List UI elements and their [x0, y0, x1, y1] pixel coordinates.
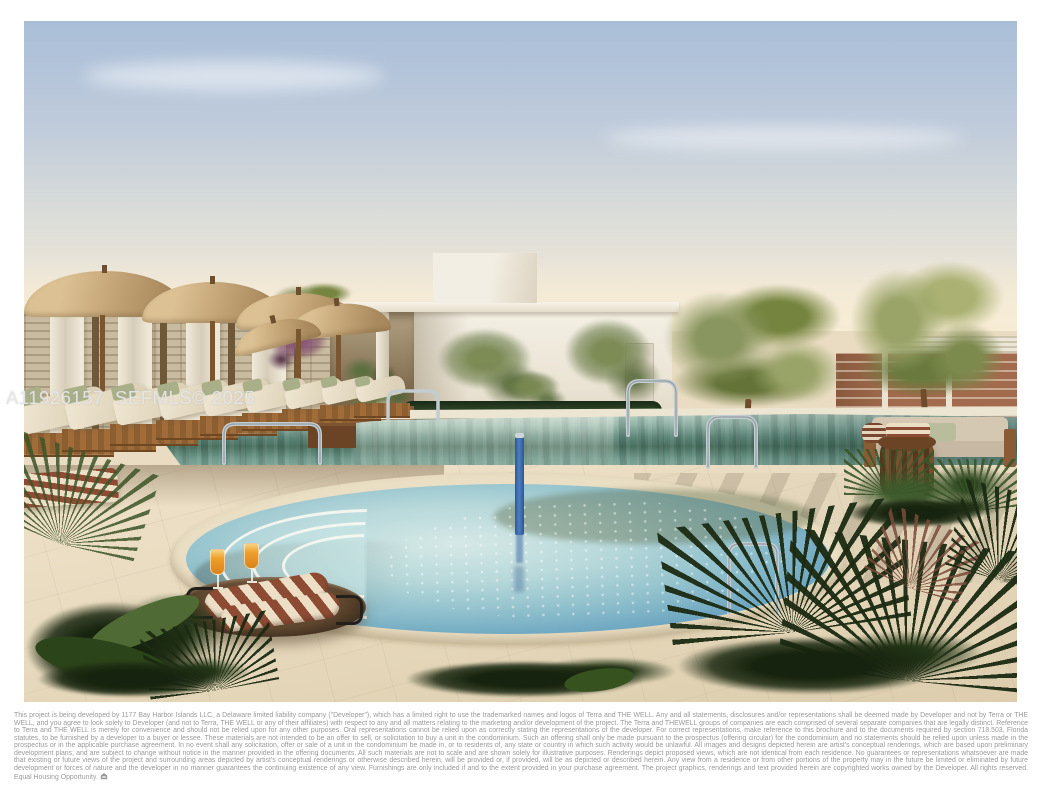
mls-watermark: A11926157 SEFMLS© 2025	[6, 387, 255, 409]
equal-housing-icon	[100, 772, 108, 780]
tray-handle	[336, 595, 363, 625]
pool-handrail	[624, 377, 680, 435]
pool-handrail	[220, 419, 324, 465]
juice-glass-bowl	[210, 549, 225, 575]
foreground-foliage	[24, 651, 274, 702]
cloud	[604, 126, 964, 150]
grass-fan	[844, 449, 934, 495]
juice-glass-bowl	[244, 543, 259, 569]
olive-tree	[832, 249, 1017, 409]
chimney-block	[433, 253, 537, 303]
pool-handrail	[704, 413, 760, 467]
developer-disclaimer: This project is being developed by 1177 …	[14, 712, 1028, 782]
juice-flute	[244, 543, 259, 581]
juice-glass-stem	[251, 569, 253, 581]
drum-table-towels	[886, 423, 930, 437]
listing-page: A11926157 SEFMLS© 2025 This project is b…	[0, 0, 1041, 804]
disclaimer-text: This project is being developed by 1177 …	[14, 712, 1028, 781]
pool-handrail	[384, 387, 442, 419]
pool-rendering-photo	[24, 21, 1017, 702]
pole-underwater	[516, 533, 523, 563]
cloud	[84, 61, 384, 91]
foreground-foliage	[644, 621, 1017, 702]
pole-reflection	[514, 566, 524, 592]
blue-shower-pole	[515, 437, 524, 535]
